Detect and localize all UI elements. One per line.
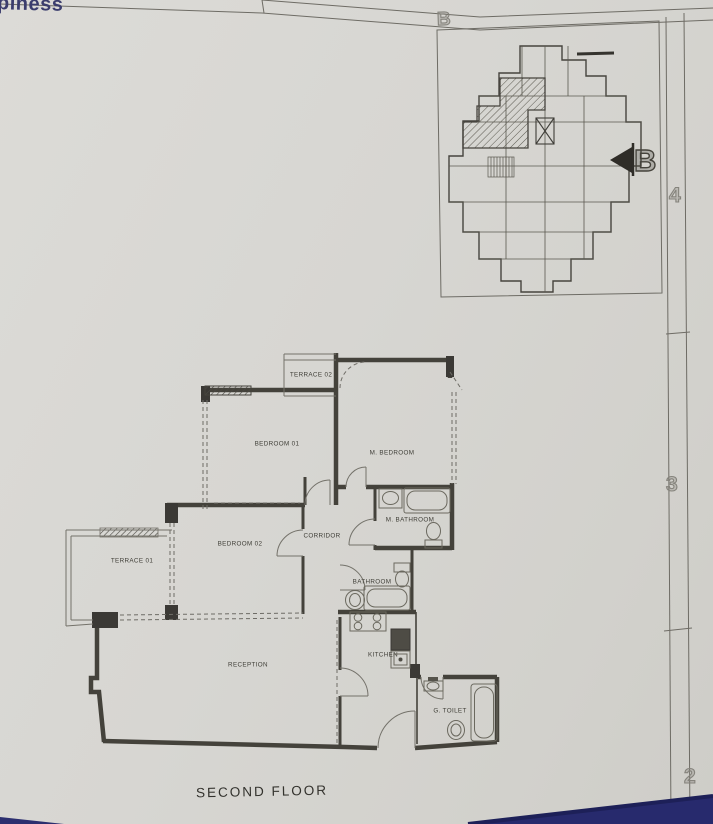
grid-row-label-3: 3 xyxy=(666,473,678,497)
blue-frame-corner xyxy=(0,795,713,824)
key-plan-stairs xyxy=(488,157,514,177)
room-label-g-toilet: G. TOILET xyxy=(433,708,466,715)
grid-column-label-b: B xyxy=(437,9,451,31)
grid-row-label-2: 2 xyxy=(684,765,696,789)
room-label-bedroom-01: BEDROOM 01 xyxy=(255,441,300,448)
apartment-plan xyxy=(66,353,497,748)
room-label-bedroom-02: BEDROOM 02 xyxy=(218,541,263,548)
fridge xyxy=(391,629,410,650)
hatched-wall xyxy=(205,386,251,395)
section-arrow-icon xyxy=(610,143,633,176)
grid-row-label-4: 4 xyxy=(669,184,681,208)
floor-plan-drawing xyxy=(0,0,713,824)
sheet-top-border xyxy=(0,0,713,30)
room-label-terrace-01: TERRACE 01 xyxy=(111,558,153,565)
room-label-kitchen: KITCHEN xyxy=(368,652,398,659)
walls xyxy=(91,353,497,748)
scanned-floor-plan-sheet: piness B 4 3 2 B TERRACE 02 BEDROOM 01 M… xyxy=(0,0,713,824)
room-label-m-bedroom: M. BEDROOM xyxy=(370,450,415,457)
fixtures xyxy=(346,488,498,741)
room-label-reception: RECEPTION xyxy=(228,662,268,669)
toilet-tank xyxy=(428,677,438,681)
logo-text-partial: piness xyxy=(0,0,64,17)
sheet-right-border xyxy=(664,13,692,824)
room-label-m-bathroom: M. BATHROOM xyxy=(386,517,435,524)
key-plan-unit-highlight xyxy=(463,78,545,148)
key-plan xyxy=(437,21,662,297)
sink-drain xyxy=(399,658,403,662)
section-marker-label: B xyxy=(634,143,656,179)
room-label-corridor: CORRIDOR xyxy=(303,533,340,540)
room-label-bathroom: BATHROOM xyxy=(353,579,392,586)
floor-title: SECOND FLOOR xyxy=(196,783,328,801)
key-plan-dash xyxy=(577,53,614,54)
room-label-terrace-02: TERRACE 02 xyxy=(290,372,332,379)
